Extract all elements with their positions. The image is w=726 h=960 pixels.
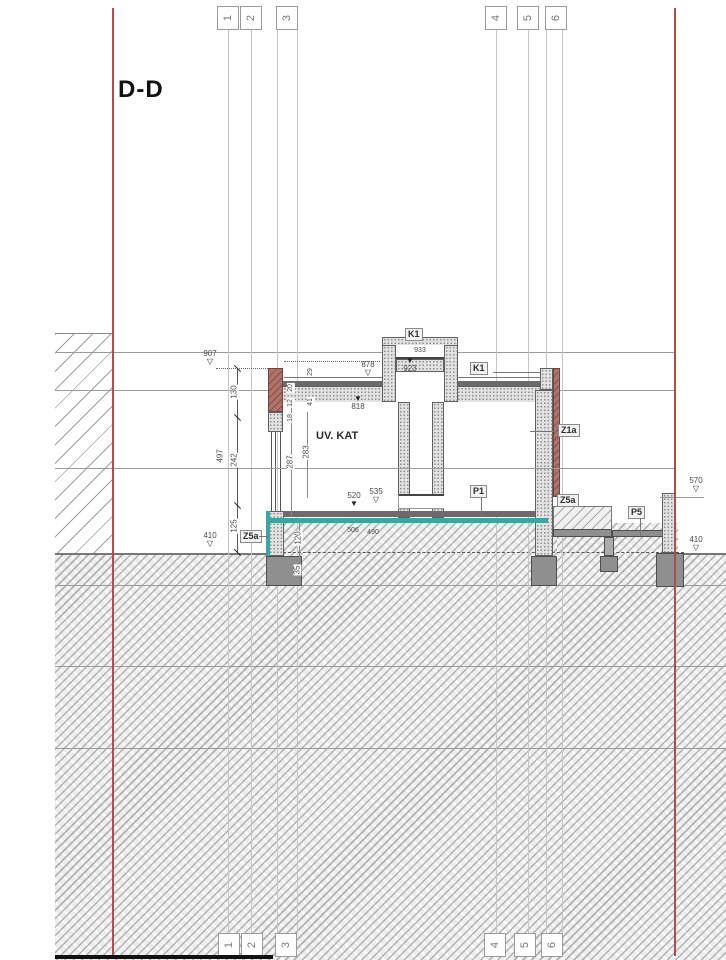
grid-number: 5 [522,15,534,21]
label-k1-roof: K1 [470,362,488,375]
dim-detail-20: 20 [287,383,295,393]
footing-right [531,556,557,586]
grid-bubble-top-3: 3 [276,6,298,30]
spot-878: 878 ▽ [356,361,380,377]
spot-506: 506 [344,527,362,535]
footing-terrace-post [600,556,618,572]
label-p5: P5 [628,506,645,519]
glazing-line-3 [280,432,281,511]
level-marker-907: 907 ▽ [198,350,222,366]
floor-waterproofing-teal [270,518,548,523]
spot-value: 923 [398,365,422,373]
grid-bubble-bottom-3: 3 [275,933,297,957]
leader-z1a [530,431,558,432]
level-open-triangle-icon: ▽ [684,485,708,493]
dim-35: 35 [293,565,301,576]
grid-bubble-bottom-4: 4 [484,933,506,957]
grid-bubble-top-4: 4 [485,6,507,30]
grid-number: 3 [281,15,293,21]
dim-287: 287 [287,454,295,469]
ground-level-line-2 [55,666,726,667]
spot-490: 490 [364,529,382,537]
roof-edge-line-right [456,377,548,378]
level-marker-410-left: 410 ▽ [198,532,222,548]
grid-line-3a [277,30,278,933]
wall-left-parapet-brick [268,368,283,412]
skylight-interior [396,372,444,402]
grid-number: 1 [222,15,234,21]
shaft-sill [398,494,446,509]
spot-value: 818 [346,403,370,411]
spot-open-triangle-icon: ▽ [364,496,388,504]
ground-level-line-1 [55,585,726,586]
excavation-dashed-line [268,552,684,553]
boundary-line-left [112,8,114,956]
grid-bubble-top-6: 6 [545,6,567,30]
wall-right-parapet [540,368,553,390]
dim-125: 125 [231,518,239,533]
glazing-line-1 [271,432,272,511]
grid-number: 6 [546,942,558,948]
existing-ground-hatch-left [55,333,113,554]
spot-solid-triangle-icon: ▼ [342,500,366,508]
dim-130: 130 [231,384,239,399]
level-marker-570: 570 ▽ [684,477,708,493]
level-open-triangle-icon: ▽ [684,544,708,552]
grid-bubble-bottom-1: 1 [218,933,240,957]
grid-line-6b [562,30,563,933]
spot-open-triangle-icon: ▽ [356,369,380,377]
leader-z5a-left [259,536,269,537]
dim-120: 120 [295,530,303,545]
spot-535: 535 ▽ [364,488,388,504]
level-marker-410-right: 410 ▽ [684,536,708,552]
ground-hatch-under-terrace [557,537,676,553]
grid-number: 2 [246,942,258,948]
leader-p1 [481,497,482,516]
shaft-interior [410,402,432,494]
leader-p5 [640,518,641,536]
terrace-step-block [553,506,612,531]
level-907-dotted-leader [216,368,268,369]
ground-surface-right [684,553,726,555]
grid-bubble-top-1: 1 [217,6,239,30]
glazing-line-2 [275,432,276,511]
dim-detail-12: 12 [287,398,295,408]
dim-497: 497 [217,448,225,463]
section-drawing-dd: D-D [0,0,726,960]
grid-number: 5 [519,942,531,948]
room-label: UV. KAT [316,430,358,442]
label-z5a-right: Z5a [557,494,579,507]
grid-bubble-top-2: 2 [240,6,262,30]
grid-bubble-bottom-6: 6 [541,933,563,957]
ground-hatch-main [55,553,726,960]
terrace-post [604,537,614,556]
skylight-wall-right [444,345,458,402]
leader-k1-roof [493,372,540,373]
grid-bubble-top-5: 5 [517,6,539,30]
ground-surface-left [55,553,268,555]
grid-bubble-bottom-5: 5 [514,933,536,957]
floor-screed-band [283,511,535,517]
wall-left-upper [268,412,283,432]
wall-right [535,390,553,556]
spot-923: ▼ 923 [398,357,422,373]
grid-number: 3 [280,942,292,948]
level-open-triangle-icon: ▽ [198,540,222,548]
grid-number: 6 [550,15,562,21]
label-z1a: Z1a [558,424,580,437]
footing-retaining-wall [656,553,684,587]
level-open-triangle-icon: ▽ [198,358,222,366]
dim-detail-41: 41 [307,397,315,407]
border-bar [55,955,273,959]
ground-level-line-3 [55,748,726,749]
grid-line-2 [251,30,252,933]
label-p1: P1 [470,485,487,498]
dim-283: 283 [303,444,311,459]
label-k1-skylight: K1 [405,328,423,341]
grid-number: 2 [245,15,257,21]
grid-number: 4 [490,15,502,21]
boundary-line-right [674,8,676,956]
roof-edge-line-left [284,377,384,378]
wall-waterproofing-teal-left [266,511,270,558]
skylight-wall-left [382,345,396,402]
grid-bubble-bottom-2: 2 [241,933,263,957]
level-line-top [55,352,675,353]
terrace-step-base [553,529,612,537]
grid-number: 1 [223,942,235,948]
room-right-interior [444,402,535,511]
dim-detail-18: 18 [287,413,295,423]
grid-line-1 [228,30,229,933]
spot-933: 933 [396,347,444,355]
drawing-title: D-D [118,76,164,104]
dim-detail-29: 29 [307,367,315,377]
dim-242: 242 [231,452,239,467]
spot-520: 520 ▼ [342,492,366,508]
level-line-mid [55,468,675,469]
spot-818: ▼ 818 [346,395,370,411]
grid-number: 4 [489,942,501,948]
terrace-level-line [660,497,704,498]
